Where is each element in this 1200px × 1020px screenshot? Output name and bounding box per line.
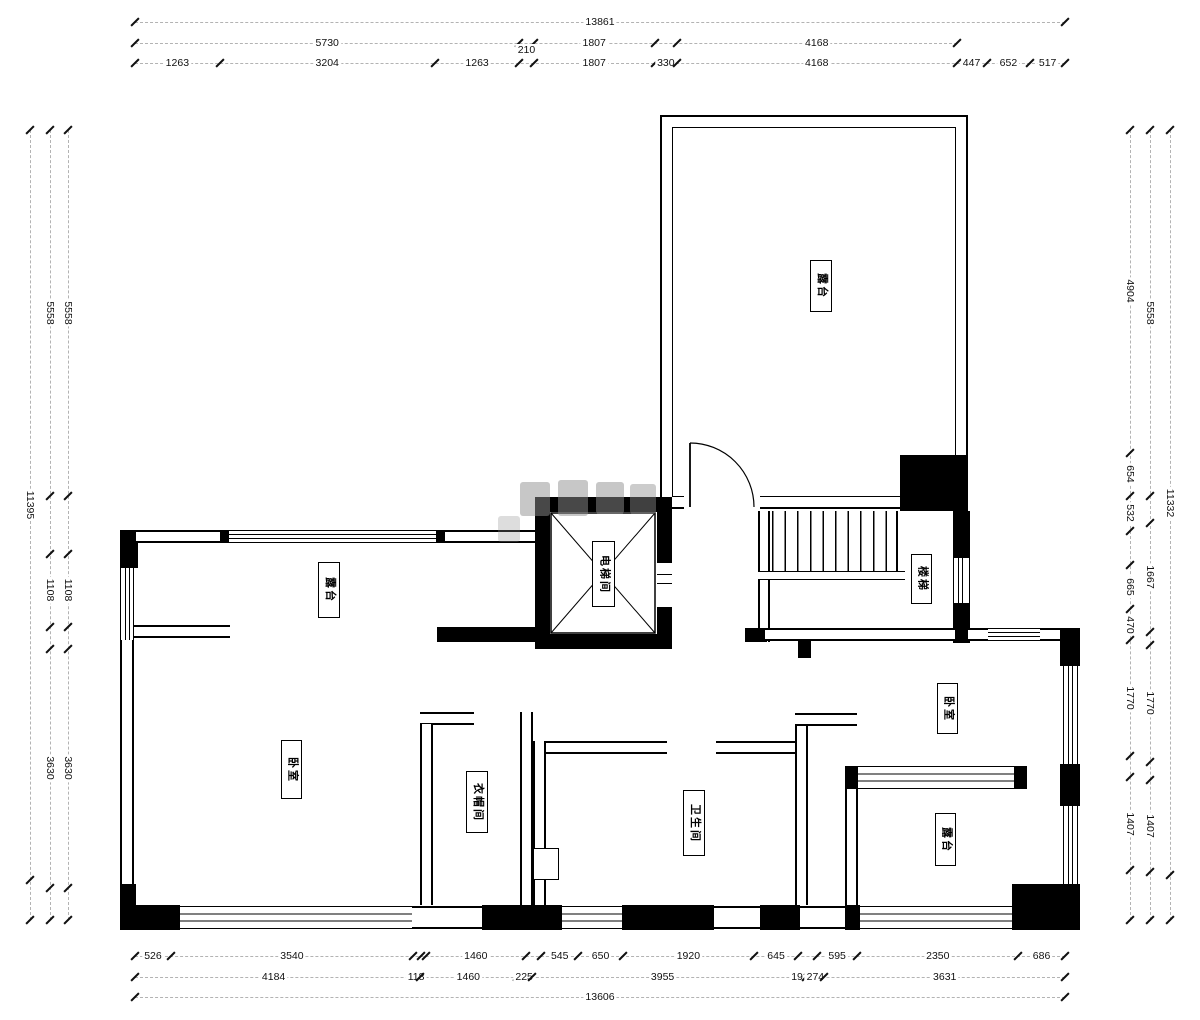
closet-wall-right bbox=[520, 712, 533, 905]
dim-label: 13861 bbox=[583, 16, 616, 28]
watermark-artifact bbox=[596, 482, 624, 514]
dim-col-left-middle: 555811083630 bbox=[44, 130, 58, 920]
dim-label: 1108 bbox=[62, 577, 74, 604]
room-label-terrace-top: 露台 bbox=[810, 260, 832, 312]
dim-label: 447 bbox=[961, 57, 983, 69]
dim-label: 4184 bbox=[260, 971, 287, 983]
dim-label: 1460 bbox=[455, 971, 482, 983]
dim-label: 1263 bbox=[164, 57, 191, 69]
dim-tick bbox=[1060, 972, 1069, 981]
dim-label: 2350 bbox=[924, 950, 951, 962]
dim-label: 470 bbox=[1124, 614, 1136, 636]
dim-label: 3955 bbox=[649, 971, 676, 983]
room-label-bathroom: 卫生间 bbox=[683, 790, 705, 856]
wall-corner-block bbox=[1012, 884, 1080, 930]
dim-row-bottom-inner: 5263540146054565019206455952350686 bbox=[135, 950, 1065, 964]
terrace-wall-left bbox=[845, 789, 858, 905]
dim-label: 4904 bbox=[1124, 278, 1136, 305]
dim-label: 1807 bbox=[580, 37, 607, 49]
dim-label: 654 bbox=[1124, 463, 1136, 485]
dim-label: 517 bbox=[1037, 57, 1059, 69]
wall-block bbox=[120, 905, 180, 930]
bathroom-wall-top-right bbox=[716, 741, 795, 754]
wall-block bbox=[622, 905, 714, 930]
dim-col-right-inner: 490465453266547017701407 bbox=[1124, 130, 1138, 920]
dim-label: 652 bbox=[998, 57, 1020, 69]
dim-label: 595 bbox=[826, 950, 848, 962]
railing-post bbox=[845, 766, 858, 789]
dim-line bbox=[1150, 130, 1151, 920]
dim-col-right-outer: 11332 bbox=[1164, 130, 1178, 920]
dim-label: 1770 bbox=[1124, 685, 1136, 712]
dim-row-top-middle: 573018074168 bbox=[135, 37, 1065, 51]
floor-plan-canvas: 13861 573018074168 126332041263210180733… bbox=[0, 0, 1200, 1020]
dim-line bbox=[30, 130, 31, 920]
closet-wall-left bbox=[420, 724, 433, 905]
wall-block bbox=[1060, 764, 1080, 806]
dim-label: 1920 bbox=[675, 950, 702, 962]
wall-segment bbox=[800, 906, 845, 929]
dim-row-top-outer: 13861 bbox=[135, 16, 1065, 30]
dim-label: 1407 bbox=[1144, 812, 1156, 839]
dim-tick bbox=[1060, 58, 1069, 67]
dim-row-top-inner: 12633204126321018073304168447652517 bbox=[135, 57, 1065, 71]
dim-label: 5558 bbox=[44, 299, 56, 326]
dim-label: 686 bbox=[1031, 950, 1053, 962]
dim-col-left-outer: 11395 bbox=[24, 130, 38, 920]
window bbox=[120, 568, 134, 640]
wall-block bbox=[760, 905, 800, 930]
dim-label: 11395 bbox=[24, 489, 36, 521]
dim-row-bottom-middle: 4184118146022539551922743631 bbox=[135, 971, 1065, 985]
room-label-terrace-bottom: 露台 bbox=[935, 813, 956, 866]
window bbox=[1063, 806, 1078, 884]
dim-label: 3540 bbox=[278, 950, 305, 962]
stair-treads bbox=[772, 511, 898, 572]
dim-line bbox=[68, 130, 69, 920]
elevator-wall-right-lower bbox=[657, 607, 672, 649]
dim-label: 11332 bbox=[1164, 486, 1176, 518]
wall-corner-block bbox=[1060, 628, 1080, 666]
dim-label: 13606 bbox=[583, 991, 616, 1003]
wall-block bbox=[482, 905, 562, 930]
wall-block bbox=[437, 627, 535, 642]
wall-block bbox=[745, 628, 767, 642]
dim-label: 1263 bbox=[463, 57, 490, 69]
wall-segment bbox=[795, 713, 857, 726]
dim-label: 1770 bbox=[1144, 690, 1156, 717]
dim-tick bbox=[1060, 951, 1069, 960]
dim-line bbox=[135, 43, 957, 44]
bathroom-wall-top-left bbox=[533, 741, 667, 754]
window-post bbox=[220, 530, 229, 543]
dim-label: 5558 bbox=[62, 299, 74, 326]
dim-label: 4168 bbox=[803, 57, 830, 69]
dim-label: 526 bbox=[142, 950, 164, 962]
dim-label: 5730 bbox=[314, 37, 341, 49]
stairwell-window bbox=[953, 558, 970, 603]
dim-label: 532 bbox=[1124, 502, 1136, 524]
dim-label: 650 bbox=[590, 950, 612, 962]
stairwell-wall-upper bbox=[953, 511, 970, 558]
dim-label: 645 bbox=[765, 950, 787, 962]
dim-label: 210 bbox=[516, 44, 538, 56]
elevator-wall-bottom bbox=[535, 634, 672, 649]
wall-block bbox=[845, 905, 860, 930]
window bbox=[860, 906, 1012, 929]
dim-tick bbox=[1165, 915, 1174, 924]
bathroom-wall-left bbox=[533, 741, 546, 905]
room-label-bedroom-right: 卧室 bbox=[937, 683, 958, 734]
dim-label: 4168 bbox=[803, 37, 830, 49]
window bbox=[562, 906, 622, 929]
elevator-wall-right-upper bbox=[657, 497, 672, 563]
bathroom-niche bbox=[533, 848, 559, 880]
room-label-closet: 衣帽间 bbox=[466, 771, 488, 833]
dim-label: 3631 bbox=[931, 971, 958, 983]
dim-label: 1667 bbox=[1144, 564, 1156, 591]
wall-segment bbox=[412, 906, 482, 929]
room-label-elevator: 电梯间 bbox=[592, 541, 615, 607]
dim-label: 3630 bbox=[44, 755, 56, 782]
window-post bbox=[436, 530, 445, 543]
window bbox=[1063, 666, 1078, 764]
dim-tick bbox=[45, 915, 54, 924]
dim-label: 5558 bbox=[1144, 299, 1156, 326]
window bbox=[988, 628, 1040, 641]
watermark-artifact bbox=[558, 480, 588, 516]
window bbox=[180, 906, 412, 929]
dim-label: 1807 bbox=[580, 57, 607, 69]
door-arc bbox=[688, 441, 758, 511]
wall-segment bbox=[120, 640, 134, 886]
stair-landing-line bbox=[758, 571, 905, 580]
elevator-wall-left bbox=[535, 497, 550, 649]
dim-tick bbox=[63, 915, 72, 924]
black-wall-block bbox=[900, 455, 968, 511]
wall-segment bbox=[714, 906, 760, 929]
dim-tick bbox=[1060, 17, 1069, 26]
stair-edge-line bbox=[896, 511, 898, 572]
dim-tick bbox=[1060, 992, 1069, 1001]
dim-label: 3204 bbox=[314, 57, 341, 69]
watermark-artifact bbox=[498, 516, 520, 542]
dim-label: 1108 bbox=[44, 577, 56, 604]
dim-label: 1460 bbox=[462, 950, 489, 962]
dim-line bbox=[1130, 130, 1131, 920]
wall-segment bbox=[134, 625, 230, 638]
dim-line bbox=[1170, 130, 1171, 920]
dim-tick bbox=[25, 915, 34, 924]
watermark-artifact bbox=[520, 482, 550, 516]
dim-col-left-inner: 555811083630 bbox=[62, 130, 76, 920]
elevator-door bbox=[657, 574, 672, 584]
dim-tick bbox=[1145, 915, 1154, 924]
dim-label: 3630 bbox=[62, 755, 74, 782]
room-label-bedroom-left: 卧室 bbox=[281, 740, 302, 799]
dim-line bbox=[50, 130, 51, 920]
watermark-artifact bbox=[630, 484, 656, 514]
wall-stub bbox=[798, 641, 811, 658]
dim-tick bbox=[1125, 915, 1134, 924]
room-label-stairs: 楼梯 bbox=[911, 554, 932, 604]
dim-label: 1407 bbox=[1124, 810, 1136, 837]
railing-post bbox=[1014, 766, 1027, 789]
wall-segment bbox=[795, 713, 808, 905]
wall-segment bbox=[765, 628, 955, 641]
dim-row-bottom-outer: 13606 bbox=[135, 991, 1065, 1005]
terrace-railing-window bbox=[858, 766, 1014, 789]
room-label-terrace-left: 露台 bbox=[318, 562, 340, 618]
window bbox=[228, 530, 437, 543]
dim-label: 665 bbox=[1124, 576, 1136, 598]
dim-col-right-middle: 5558166717701407 bbox=[1144, 130, 1158, 920]
dim-label: 545 bbox=[549, 950, 571, 962]
